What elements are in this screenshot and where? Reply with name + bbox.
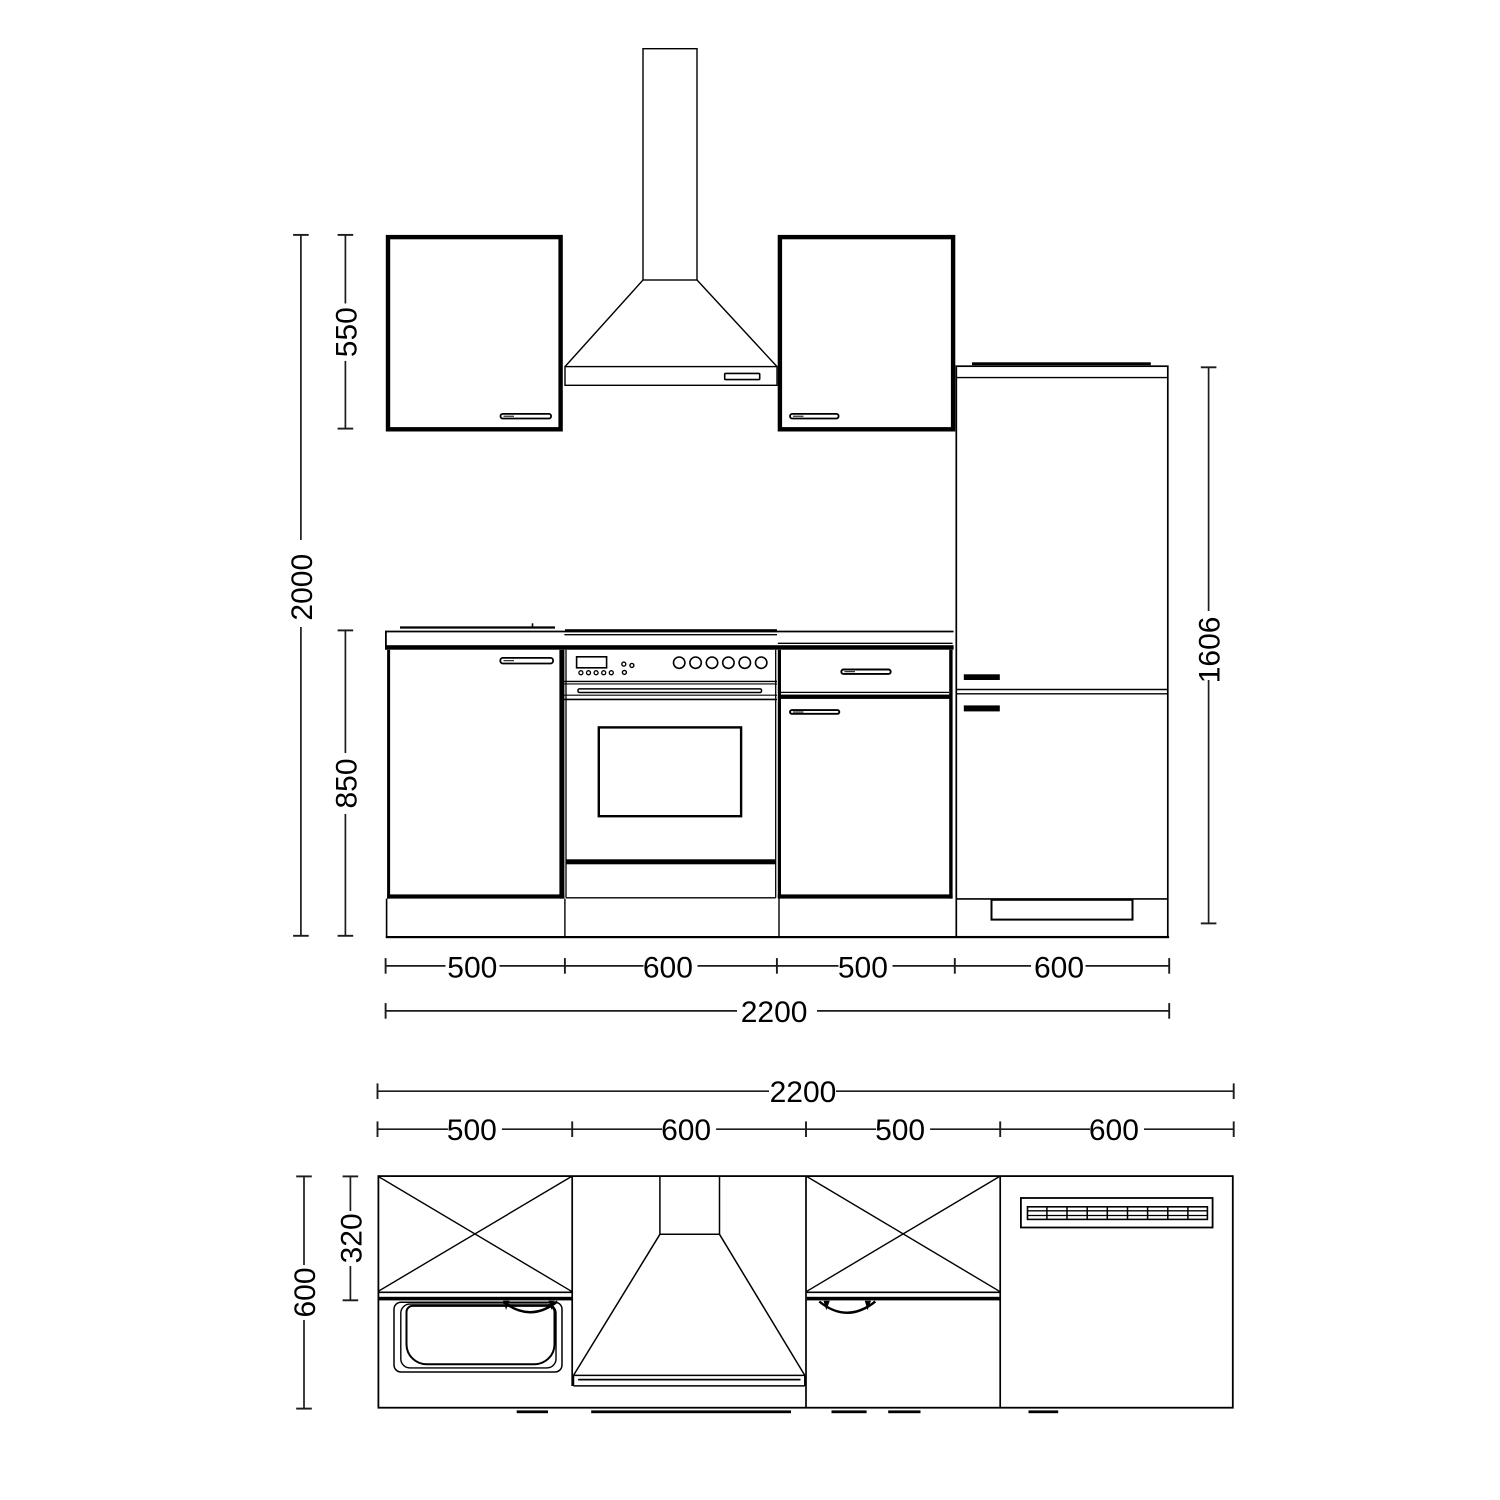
svg-text:500: 500 xyxy=(838,952,888,985)
svg-text:2200: 2200 xyxy=(741,996,808,1029)
svg-text:500: 500 xyxy=(875,1114,925,1147)
svg-text:600: 600 xyxy=(661,1114,711,1147)
svg-text:550: 550 xyxy=(330,307,363,357)
svg-text:500: 500 xyxy=(447,1114,497,1147)
svg-text:2000: 2000 xyxy=(286,554,319,621)
svg-text:850: 850 xyxy=(330,758,363,808)
svg-text:600: 600 xyxy=(643,952,693,985)
svg-text:600: 600 xyxy=(289,1267,322,1317)
svg-text:2200: 2200 xyxy=(770,1076,837,1109)
svg-text:500: 500 xyxy=(447,952,497,985)
svg-text:1606: 1606 xyxy=(1194,617,1227,684)
svg-text:600: 600 xyxy=(1034,952,1084,985)
svg-text:320: 320 xyxy=(335,1213,368,1263)
svg-text:600: 600 xyxy=(1089,1114,1139,1147)
